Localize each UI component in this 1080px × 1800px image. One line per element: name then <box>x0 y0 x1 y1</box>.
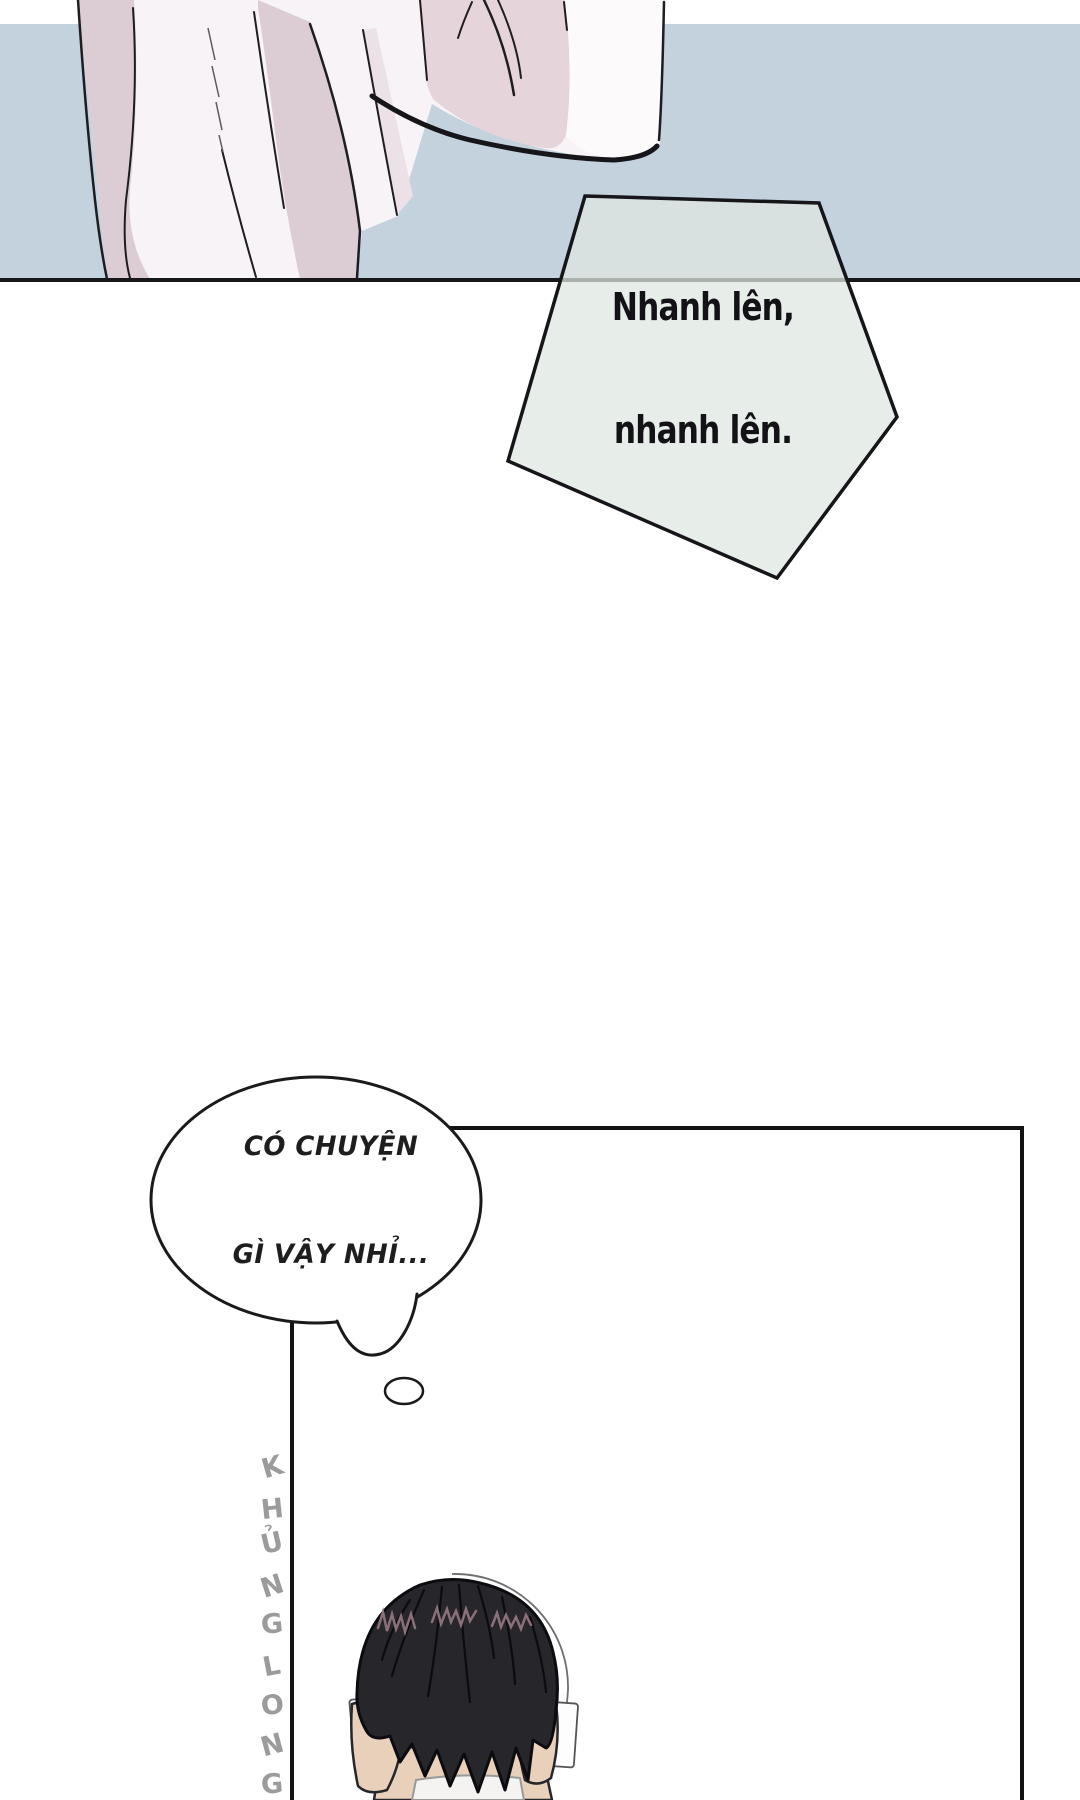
thought-line-1: CÓ CHUYỆN <box>233 1129 430 1165</box>
comic-page: Nhanh lên, nhanh lên. CÓ CHUYỆN GÌ VẬY N… <box>0 0 1080 1800</box>
thought-trail-dot <box>385 1378 423 1404</box>
speech-line-2: nhanh lên. <box>612 410 794 451</box>
scene-divider-line <box>0 278 1080 282</box>
thought-bubble-text: CÓ CHUYỆN GÌ VẬY NHỈ... <box>233 1057 430 1345</box>
character-head <box>349 1574 578 1800</box>
comic-artwork <box>0 0 1080 1800</box>
thought-line-2: GÌ VẬY NHỈ... <box>233 1237 430 1273</box>
sleeve-white-tip <box>565 0 665 160</box>
speech-bubble-text: Nhanh lên, nhanh lên. <box>612 205 794 533</box>
speech-line-1: Nhanh lên, <box>612 287 794 328</box>
